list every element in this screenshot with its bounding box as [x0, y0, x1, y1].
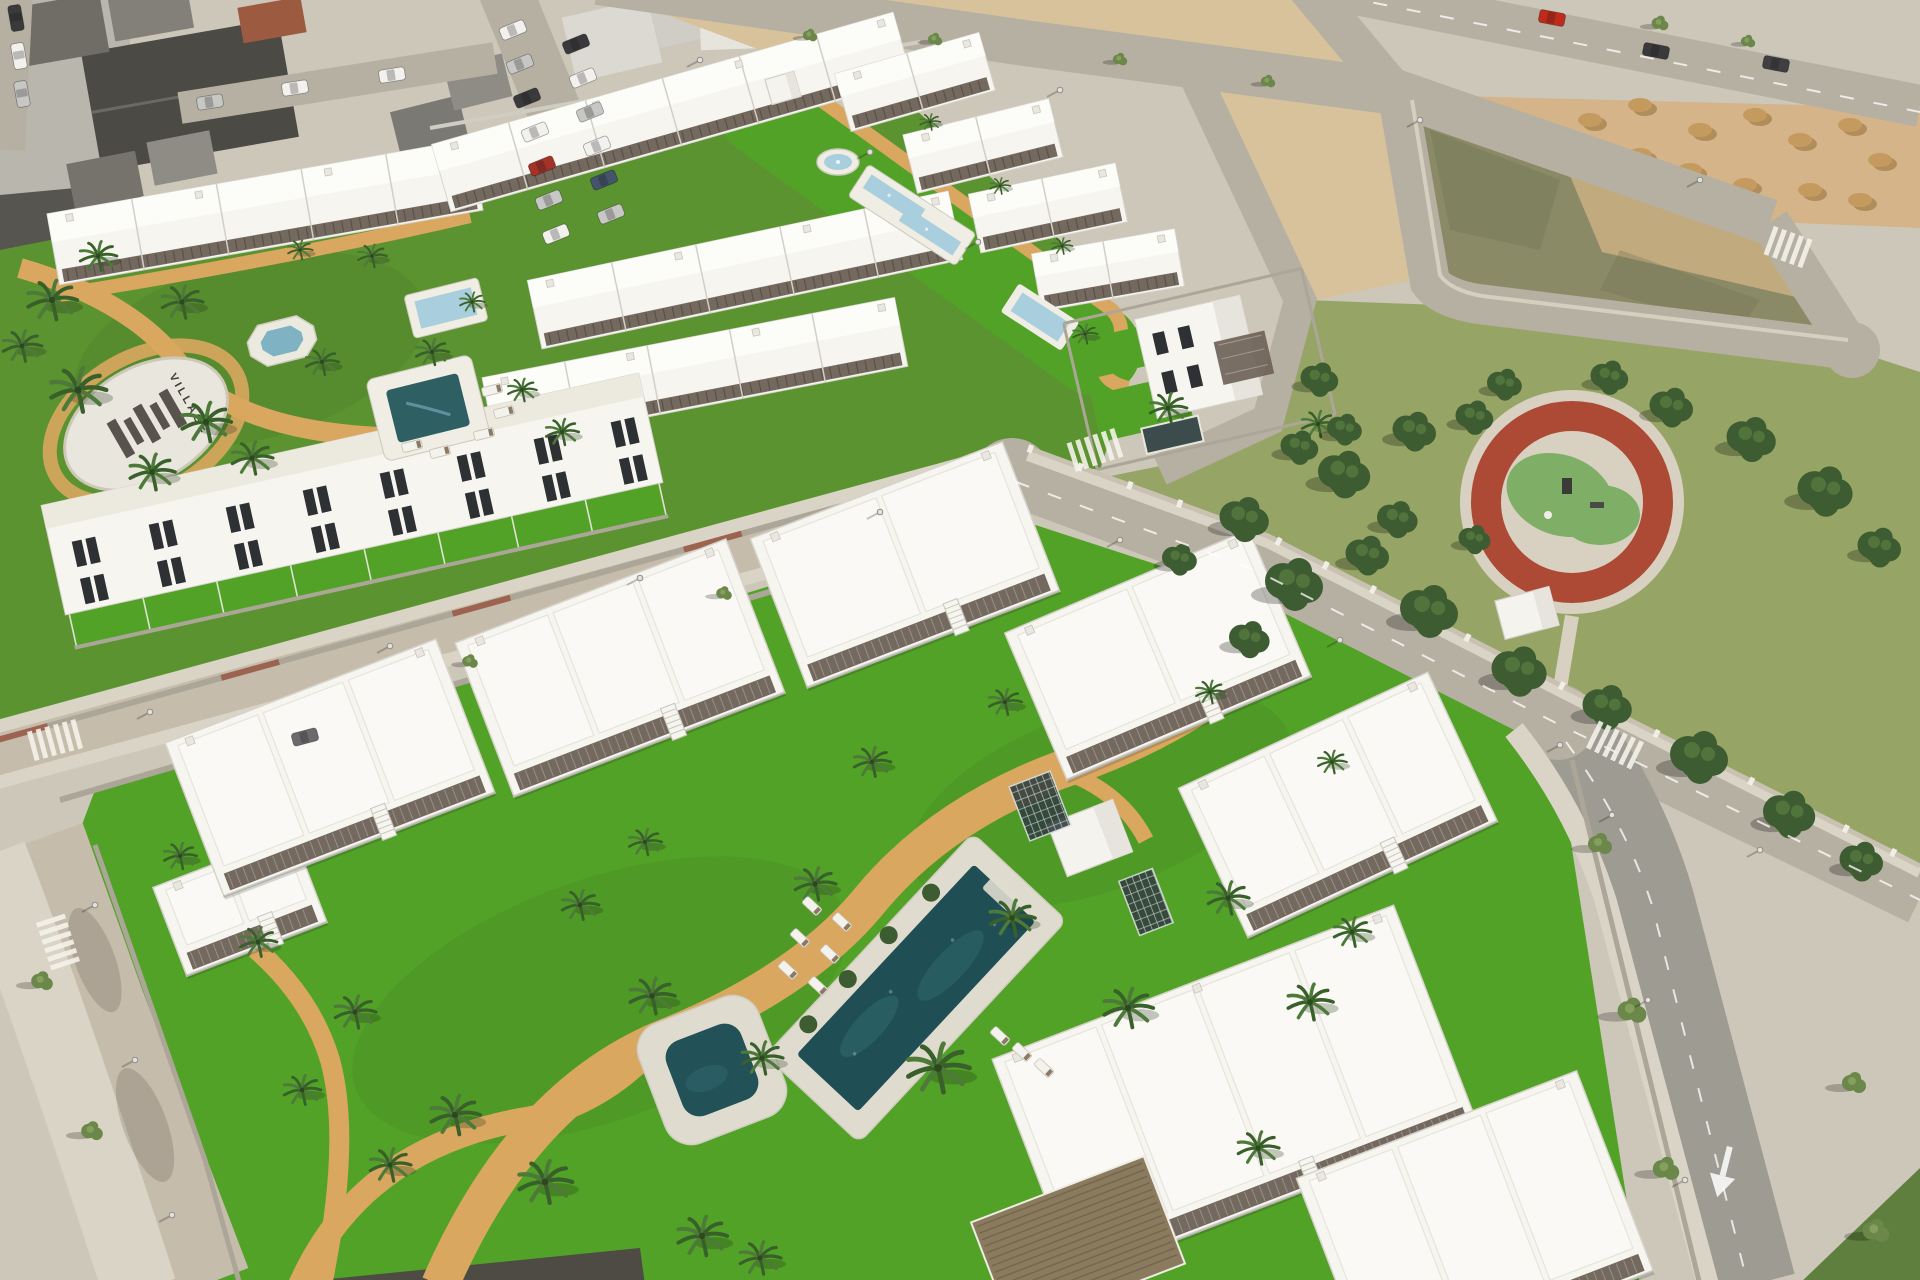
- round-fountain: [817, 149, 859, 175]
- aerial-render-stage: VILLAGE: [0, 0, 1920, 1280]
- junction: [1824, 322, 1880, 378]
- play-equipment: [1544, 511, 1552, 519]
- play-equipment: [1562, 478, 1572, 494]
- play-equipment: [1590, 502, 1604, 508]
- aerial-development-render: VILLAGE: [0, 0, 1920, 1280]
